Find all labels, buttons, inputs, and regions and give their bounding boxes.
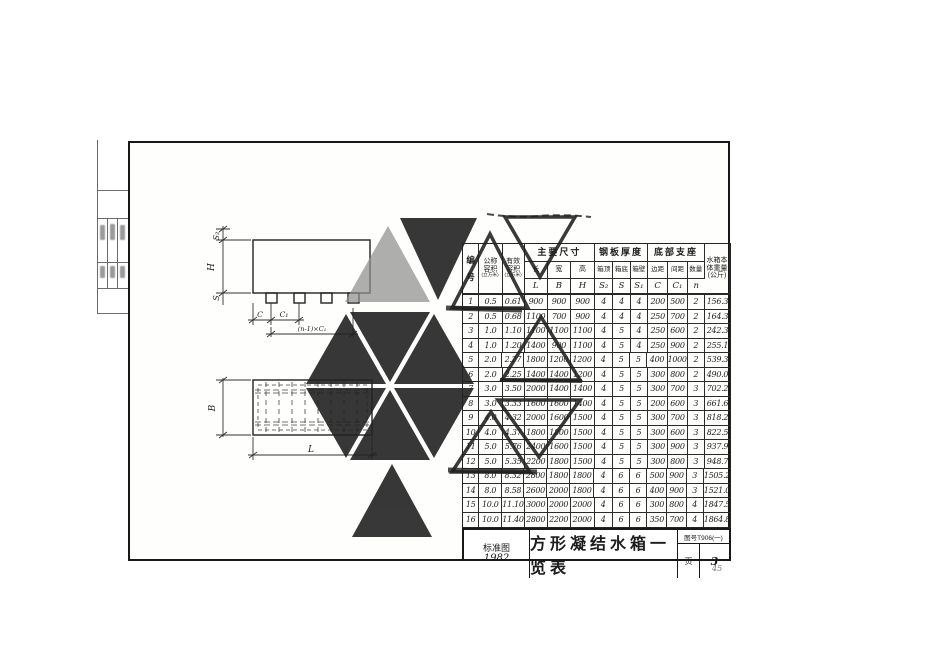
table-cell: 2 xyxy=(688,353,705,368)
table-cell: 2 xyxy=(688,310,705,325)
header-nominal-volume: 公称 容积 (立方米) xyxy=(479,244,502,294)
header-spacing: 间距 xyxy=(668,262,687,279)
table-cell: 700 xyxy=(667,513,686,528)
page-value: 3 xyxy=(700,544,729,578)
table-cell: 6 xyxy=(613,498,630,513)
illegible-mark xyxy=(110,224,115,240)
table-cell: 900 xyxy=(667,469,686,484)
table-cell: 4 xyxy=(594,469,612,484)
table-cell: 1200 xyxy=(571,368,595,383)
standard-label: 标准图 xyxy=(483,543,510,554)
table-cell: 937.9 xyxy=(705,440,730,455)
table-cell: 800 xyxy=(667,498,686,513)
table-cell: 2.0 xyxy=(479,368,502,383)
table-cell: 1400 xyxy=(571,382,595,397)
table-cell: 5 xyxy=(631,397,648,412)
sheet-title: 方形凝结水箱一览表 xyxy=(530,530,677,578)
header-wall-plate: 箱壁 xyxy=(631,262,648,279)
doc-number: 图号T906(一) xyxy=(678,530,729,544)
table-cell: 1100 xyxy=(525,324,548,339)
header-bottom-support: 底部支座 xyxy=(648,244,705,262)
table-cell: 3.33 xyxy=(503,397,525,412)
page-label: 页 xyxy=(678,544,700,578)
table-cell: 1847.5 xyxy=(704,498,730,513)
table-cell: 2400 xyxy=(525,440,548,455)
table-cell: 5 xyxy=(631,426,648,441)
table-cell: 3 xyxy=(688,411,705,426)
table-cell: 1 xyxy=(463,295,479,310)
table-row: 104.04.371800180015004553006003822.5 xyxy=(463,426,730,441)
table-cell: 1800 xyxy=(548,426,571,441)
table-row: 115.05.762400160015004553009003937.9 xyxy=(463,440,730,455)
table-cell: 6 xyxy=(613,513,630,528)
table-cell: 5 xyxy=(630,353,647,368)
header-sym-C: C xyxy=(648,279,668,294)
header-height: 高 xyxy=(571,262,595,279)
table-cell: 1505.2 xyxy=(704,469,730,484)
table-cell: 1500 xyxy=(571,455,595,470)
table-cell: 5 xyxy=(613,324,630,339)
table-cell: 2.25 xyxy=(503,368,525,383)
table-cell: 255.1 xyxy=(705,339,730,354)
table-cell: 5 xyxy=(613,382,630,397)
table-cell: 600 xyxy=(668,426,687,441)
table-cell: 4 xyxy=(687,513,704,528)
table-cell: 300 xyxy=(647,498,667,513)
table-cell: 700 xyxy=(668,411,687,426)
table-cell: 5 xyxy=(613,440,630,455)
table-cell: 3 xyxy=(463,324,479,339)
illegible-mark xyxy=(100,266,105,278)
table-cell: 900 xyxy=(571,295,595,310)
table-cell: 4 xyxy=(631,310,648,325)
table-cell: 11.10 xyxy=(502,498,524,513)
illegible-mark xyxy=(120,266,125,278)
table-cell: 3.50 xyxy=(503,382,525,397)
standard-drawing-cell: 标准图 1982 xyxy=(464,530,530,578)
header-sym-L: L xyxy=(525,279,548,294)
table-cell: 600 xyxy=(668,324,687,339)
table-cell: 11 xyxy=(463,440,479,455)
table-cell: 1800 xyxy=(547,469,570,484)
table-cell: 700 xyxy=(668,310,687,325)
table-cell: 5 xyxy=(613,411,630,426)
standard-year: 1982 xyxy=(484,553,509,565)
table-cell: 3 xyxy=(688,440,705,455)
table-cell: 1400 xyxy=(525,339,548,354)
table-row: 94.04.322000160015004553007003818.2 xyxy=(463,411,730,426)
table-cell: 3 xyxy=(687,484,704,499)
table-row: 20.50.6811007009004442507002164.3 xyxy=(463,310,730,325)
table-cell: 6 xyxy=(463,368,479,383)
table-row: 62.02.251400140012004553008002490.0 xyxy=(463,368,730,383)
table-cell: 1800 xyxy=(524,353,547,368)
header-width: 宽 xyxy=(548,262,571,279)
table-cell: 250 xyxy=(648,339,668,354)
table-cell: 661.6 xyxy=(705,397,730,412)
table-cell: 1.20 xyxy=(503,339,525,354)
table-row: 31.01.101100110011004542506002242.3 xyxy=(463,324,730,339)
table-cell: 900 xyxy=(548,295,571,310)
table-cell: 10 xyxy=(463,426,479,441)
table-cell: 3 xyxy=(688,426,705,441)
table-cell: 1.0 xyxy=(479,339,502,354)
table-cell: 1400 xyxy=(571,397,595,412)
table-cell: 1600 xyxy=(548,397,571,412)
table-cell: 1000 xyxy=(668,353,688,368)
table-cell: 300 xyxy=(648,440,668,455)
table-cell: 2.0 xyxy=(479,353,502,368)
table-row: 83.03.331600160014004552006003661.6 xyxy=(463,397,730,412)
table-cell: 900 xyxy=(525,295,548,310)
strip-line xyxy=(117,218,118,288)
header-length: 长 xyxy=(525,262,548,279)
header-count: 数量 xyxy=(688,262,705,279)
table-cell: 4 xyxy=(595,440,613,455)
table-cell: 10.0 xyxy=(479,498,502,513)
table-row: 10.50.619009009004442005002156.3 xyxy=(463,295,730,310)
table-cell: 490.0 xyxy=(705,368,730,383)
table-cell: 1.0 xyxy=(479,324,502,339)
illegible-mark xyxy=(120,225,125,240)
strip-line xyxy=(97,218,128,219)
table-cell: 4 xyxy=(595,397,613,412)
table-cell: 4 xyxy=(595,353,613,368)
table-cell: 1400 xyxy=(548,382,571,397)
table-cell: 1200 xyxy=(548,353,571,368)
table-cell: 700 xyxy=(548,310,571,325)
table-cell: 1800 xyxy=(570,469,594,484)
table-cell: 8.32 xyxy=(502,469,524,484)
table-cell: 3 xyxy=(688,455,705,470)
table-cell: 1800 xyxy=(525,426,548,441)
table-cell: 2 xyxy=(463,310,479,325)
table-cell: 2000 xyxy=(525,382,548,397)
table-cell: 1864.8 xyxy=(704,513,730,528)
table-cell: 1521.0 xyxy=(704,484,730,499)
table-cell: 200 xyxy=(648,295,668,310)
table-cell: 2000 xyxy=(525,411,548,426)
table-cell: 5 xyxy=(613,397,630,412)
table-cell: 5 xyxy=(613,339,630,354)
table-cell: 242.3 xyxy=(705,324,730,339)
table-cell: 5 xyxy=(463,353,479,368)
strip-line xyxy=(97,190,128,191)
table-cell: 4.0 xyxy=(479,411,502,426)
strip-line xyxy=(107,218,108,288)
table-cell: 1500 xyxy=(571,411,595,426)
table-cell: 3 xyxy=(688,382,705,397)
table-row: 148.08.5826002000180046640090031521.0 xyxy=(463,484,730,499)
table-cell: 1500 xyxy=(571,440,595,455)
header-plate-thickness: 钢板厚度 xyxy=(595,244,648,262)
table-cell: 1400 xyxy=(548,368,571,383)
table-cell: 5 xyxy=(613,426,630,441)
table-cell: 300 xyxy=(648,411,668,426)
header-no: 编 号 xyxy=(463,244,479,294)
table-cell: 4 xyxy=(595,426,613,441)
illegible-mark xyxy=(100,225,105,240)
table-cell: 4 xyxy=(594,484,612,499)
table-row: 1610.011.4028002200200046635070041864.8 xyxy=(463,513,730,528)
table-cell: 4 xyxy=(595,382,613,397)
table-cell: 3.0 xyxy=(479,382,502,397)
header-effective-volume: 有效 容积 (立方米) xyxy=(503,244,525,294)
table-cell: 8.58 xyxy=(502,484,524,499)
table-cell: 9 xyxy=(463,411,479,426)
table-cell: 5 xyxy=(631,411,648,426)
table-cell: 8 xyxy=(463,397,479,412)
table-cell: 300 xyxy=(648,368,668,383)
table-cell: 2000 xyxy=(547,484,570,499)
table-cell: 4.37 xyxy=(503,426,525,441)
table-cell: 1400 xyxy=(525,368,548,383)
strip-line xyxy=(97,313,128,314)
table-cell: 200 xyxy=(648,397,668,412)
table-row: 52.02.2718001200120045540010002539.3 xyxy=(463,353,730,368)
doc-number-cell: 图号T906(一) 页 3 xyxy=(677,530,729,578)
table-cell: 0.61 xyxy=(503,295,525,310)
table-cell: 5.76 xyxy=(503,440,525,455)
table-cell: 1100 xyxy=(571,324,595,339)
table-cell: 900 xyxy=(548,339,571,354)
table-cell: 1600 xyxy=(525,397,548,412)
table-row: 73.03.502000140014004553007003702.2 xyxy=(463,382,730,397)
table-cell: 1800 xyxy=(570,484,594,499)
header-sym-B: B xyxy=(548,279,571,294)
table-cell: 8.0 xyxy=(479,469,502,484)
table-cell: 15 xyxy=(463,498,479,513)
table-header: 编 号 公称 容积 (立方米) 有效 容积 (立方米) 主要尺寸 钢板厚度 底部… xyxy=(462,243,731,295)
table-cell: 1600 xyxy=(548,440,571,455)
table-cell: 6 xyxy=(630,484,647,499)
table-cell: 5.0 xyxy=(479,440,502,455)
table-cell: 5 xyxy=(613,353,630,368)
table-cell: 16 xyxy=(463,513,479,528)
table-cell: 2000 xyxy=(571,513,595,528)
strip-line xyxy=(97,288,128,289)
table-cell: 250 xyxy=(648,310,668,325)
table-cell: 4 xyxy=(595,368,613,383)
table-cell: 3 xyxy=(687,469,704,484)
header-sym-H: H xyxy=(571,279,595,294)
illegible-mark xyxy=(110,266,115,278)
table-cell: 4 xyxy=(631,295,648,310)
table-cell: 1500 xyxy=(571,426,595,441)
scanned-page: S₂ H S C C₁ (n-1)×C₁ B L 编 号 公称 容积 (立方米)… xyxy=(0,0,950,672)
table-cell: 14 xyxy=(463,484,479,499)
table-cell: 3 xyxy=(688,397,705,412)
table-cell: 1100 xyxy=(571,339,595,354)
table-cell: 3000 xyxy=(525,498,548,513)
table-cell: 2 xyxy=(688,368,705,383)
table-body: 10.50.619009009004442005002156.320.50.68… xyxy=(462,295,731,528)
header-sym-n: n xyxy=(688,279,705,294)
table-cell: 156.3 xyxy=(705,295,730,310)
table-cell: 800 xyxy=(668,455,687,470)
table-cell: 1100 xyxy=(548,324,571,339)
table-cell: 5.0 xyxy=(479,455,502,470)
table-cell: 4 xyxy=(595,324,613,339)
table-cell: 7 xyxy=(463,382,479,397)
table-cell: 5.35 xyxy=(503,455,525,470)
table-cell: 1800 xyxy=(548,455,571,470)
header-top-plate: 箱顶 xyxy=(595,262,613,279)
table-cell: 2 xyxy=(688,295,705,310)
table-cell: 12 xyxy=(463,455,479,470)
table-cell: 300 xyxy=(648,426,668,441)
table-cell: 4 xyxy=(463,339,479,354)
table-cell: 800 xyxy=(668,368,687,383)
table-row: 1510.011.1030002000200046630080041847.5 xyxy=(463,498,730,513)
header-tank-weight: 水箱本 体重量 (公斤) xyxy=(705,244,730,294)
table-cell: 1.10 xyxy=(503,324,525,339)
table-cell: 4 xyxy=(595,498,613,513)
table-cell: 2000 xyxy=(548,498,571,513)
table-cell: 1600 xyxy=(548,411,571,426)
table-cell: 6 xyxy=(630,498,647,513)
table-cell: 4 xyxy=(631,324,648,339)
table-cell: 818.2 xyxy=(705,411,730,426)
table-row: 125.05.352200180015004553008003948.7 xyxy=(463,455,730,470)
table-cell: 4.32 xyxy=(503,411,525,426)
table-cell: 4 xyxy=(595,455,613,470)
table-cell: 2 xyxy=(688,339,705,354)
table-cell: 6 xyxy=(613,484,630,499)
table-cell: 5 xyxy=(631,382,648,397)
table-cell: 600 xyxy=(668,397,687,412)
table-cell: 2000 xyxy=(571,498,595,513)
table-cell: 4 xyxy=(687,498,704,513)
table-cell: 4 xyxy=(595,310,613,325)
title-block: 标准图 1982 方形凝结水箱一览表 图号T906(一) 页 3 xyxy=(462,528,731,561)
table-cell: 400 xyxy=(647,353,667,368)
table-cell: 10.0 xyxy=(479,513,502,528)
table-cell: 5 xyxy=(613,368,630,383)
header-sym-S: S xyxy=(613,279,630,294)
table-cell: 539.3 xyxy=(705,353,730,368)
header-sym-S1: S₁ xyxy=(631,279,648,294)
table-cell: 6 xyxy=(630,513,647,528)
table-cell: 900 xyxy=(571,310,595,325)
table-cell: 300 xyxy=(648,382,668,397)
header-bottom-plate: 箱底 xyxy=(613,262,630,279)
table-cell: 500 xyxy=(647,469,667,484)
table-cell: 2600 xyxy=(524,484,547,499)
table-cell: 3.0 xyxy=(479,397,502,412)
table-cell: 2800 xyxy=(525,513,548,528)
table-cell: 4 xyxy=(595,295,613,310)
table-cell: 4 xyxy=(595,339,613,354)
tank-table: 编 号 公称 容积 (立方米) 有效 容积 (立方米) 主要尺寸 钢板厚度 底部… xyxy=(462,243,731,528)
table-cell: 4 xyxy=(595,411,613,426)
table-cell: 822.5 xyxy=(705,426,730,441)
table-cell: 2 xyxy=(688,324,705,339)
table-cell: 4 xyxy=(613,295,630,310)
table-cell: 5 xyxy=(631,455,648,470)
table-row: 138.08.3228001800180046650090031505.2 xyxy=(463,469,730,484)
table-cell: 900 xyxy=(668,440,687,455)
table-cell: 0.68 xyxy=(503,310,525,325)
table-cell: 900 xyxy=(667,484,686,499)
table-cell: 4 xyxy=(595,513,613,528)
table-cell: 300 xyxy=(648,455,668,470)
table-cell: 11.40 xyxy=(502,513,524,528)
header-sym-S2: S₂ xyxy=(595,279,613,294)
table-cell: 13 xyxy=(463,469,479,484)
table-cell: 2200 xyxy=(525,455,548,470)
header-sym-C1: C₁ xyxy=(668,279,687,294)
table-cell: 702.2 xyxy=(705,382,730,397)
table-cell: 2.27 xyxy=(502,353,524,368)
strip-line xyxy=(97,262,128,263)
table-cell: 1200 xyxy=(571,353,595,368)
table-cell: 5 xyxy=(631,440,648,455)
table-cell: 250 xyxy=(648,324,668,339)
table-cell: 2800 xyxy=(524,469,547,484)
table-cell: 350 xyxy=(647,513,667,528)
table-cell: 400 xyxy=(647,484,667,499)
table-cell: 6 xyxy=(630,469,647,484)
table-cell: 900 xyxy=(668,339,687,354)
table-row: 41.01.20140090011004542509002255.1 xyxy=(463,339,730,354)
table-cell: 0.5 xyxy=(479,295,502,310)
table-cell: 1100 xyxy=(525,310,548,325)
table-cell: 6 xyxy=(613,469,630,484)
table-cell: 700 xyxy=(668,382,687,397)
table-cell: 4.0 xyxy=(479,426,502,441)
table-cell: 164.3 xyxy=(705,310,730,325)
table-cell: 0.5 xyxy=(479,310,502,325)
table-cell: 8.0 xyxy=(479,484,502,499)
table-cell: 500 xyxy=(668,295,687,310)
table-cell: 2200 xyxy=(548,513,571,528)
table-cell: 5 xyxy=(631,368,648,383)
header-edge-distance: 边距 xyxy=(648,262,668,279)
table-cell: 948.7 xyxy=(705,455,730,470)
table-cell: 4 xyxy=(613,310,630,325)
table-cell: 5 xyxy=(613,455,630,470)
header-main-dimensions: 主要尺寸 xyxy=(525,244,595,262)
table-cell: 4 xyxy=(631,339,648,354)
